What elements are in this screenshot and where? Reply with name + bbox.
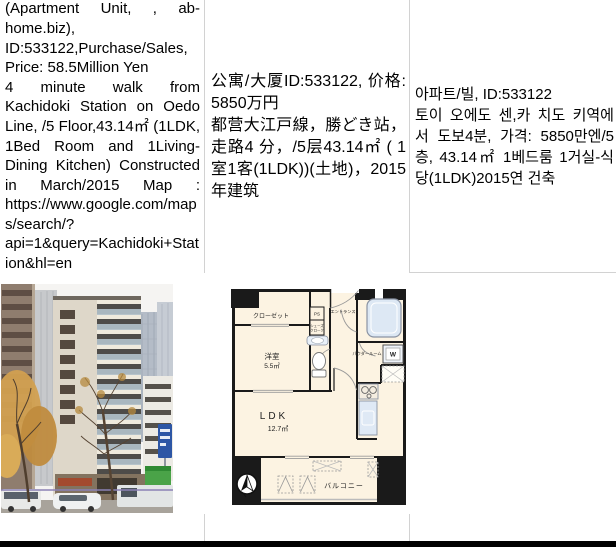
top-right-notch bbox=[375, 288, 383, 300]
fridge-space bbox=[382, 366, 404, 382]
cell-description-korean: 아파트/빌, ID:533122 토이 오에도 센,카 치도 키역에서 도보4분… bbox=[410, 0, 616, 273]
bottom-black-bar bbox=[0, 541, 616, 547]
description-korean-para2: 토이 오에도 센,카 치도 키역에서 도보4분, 가격: 5850만엔/5층, … bbox=[415, 105, 614, 189]
description-chinese-para1: 公寓/大厦ID:533122, 价格: 5850万円 bbox=[211, 71, 406, 115]
building-photo bbox=[1, 284, 173, 513]
cell-description-english: (Apartment Unit, , ab-home.biz), ID:5331… bbox=[0, 0, 205, 273]
floorplan-label-ldk-area: 12.7㎡ bbox=[268, 425, 289, 433]
kitchen-stove bbox=[359, 384, 378, 399]
listing-images-row: クローゼット 洋室 5.5㎡ PS エントランス シューズ クローク パウダール… bbox=[0, 273, 616, 514]
description-korean-para1: 아파트/빌, ID:533122 bbox=[415, 84, 614, 105]
empty-cell-3 bbox=[410, 514, 616, 541]
description-english-para2: 4 minute walk from Kachidoki Station on … bbox=[5, 78, 200, 274]
floorplan-label-washer: W bbox=[390, 352, 397, 359]
property-listing-sheet: (Apartment Unit, , ab-home.biz), ID:5331… bbox=[0, 0, 616, 547]
floorplan-label-bedroom-area: 5.5㎡ bbox=[264, 361, 280, 370]
toilet bbox=[312, 353, 326, 378]
building-photo-art bbox=[1, 284, 173, 513]
floorplan-label-shoes-closet-line2: クローク bbox=[310, 328, 324, 333]
main-building-balconies bbox=[97, 300, 141, 480]
empty-cell-1 bbox=[0, 514, 205, 541]
floorplan-label-powder-room: パウダールーム bbox=[352, 350, 381, 357]
listing-text-row: (Apartment Unit, , ab-home.biz), ID:5331… bbox=[0, 0, 616, 273]
floorplan-label-closet: クローゼット bbox=[253, 312, 289, 320]
floorplan-label-bedroom: 洋室 bbox=[265, 351, 280, 361]
floorplan-label-ps: PS bbox=[314, 312, 320, 317]
empty-row bbox=[0, 514, 616, 541]
description-english-para1: (Apartment Unit, , ab-home.biz), ID:5331… bbox=[5, 0, 200, 78]
floorplan-label-ldk: LDK bbox=[260, 411, 288, 422]
floor-plan: クローゼット 洋室 5.5㎡ PS エントランス シューズ クローク パウダール… bbox=[231, 287, 407, 507]
washbasin bbox=[307, 336, 328, 345]
floorplan-label-shoes-closet-line1: シューズ bbox=[310, 323, 324, 328]
empty-cell-2 bbox=[205, 514, 410, 541]
floor-plan-drawing: クローゼット 洋室 5.5㎡ PS エントランス シューズ クローク パウダール… bbox=[231, 287, 407, 507]
description-chinese-para2: 都营大江戸線，勝どき站，走路4 分，/5层43.14㎡ ( 1室1客(1LDK)… bbox=[211, 115, 406, 203]
kitchen-counter bbox=[359, 401, 377, 435]
floorplan-label-balcony: バルコニー bbox=[324, 482, 364, 490]
cell-description-chinese: 公寓/大厦ID:533122, 价格: 5850万円 都营大江戸線，勝どき站，走… bbox=[205, 0, 410, 273]
